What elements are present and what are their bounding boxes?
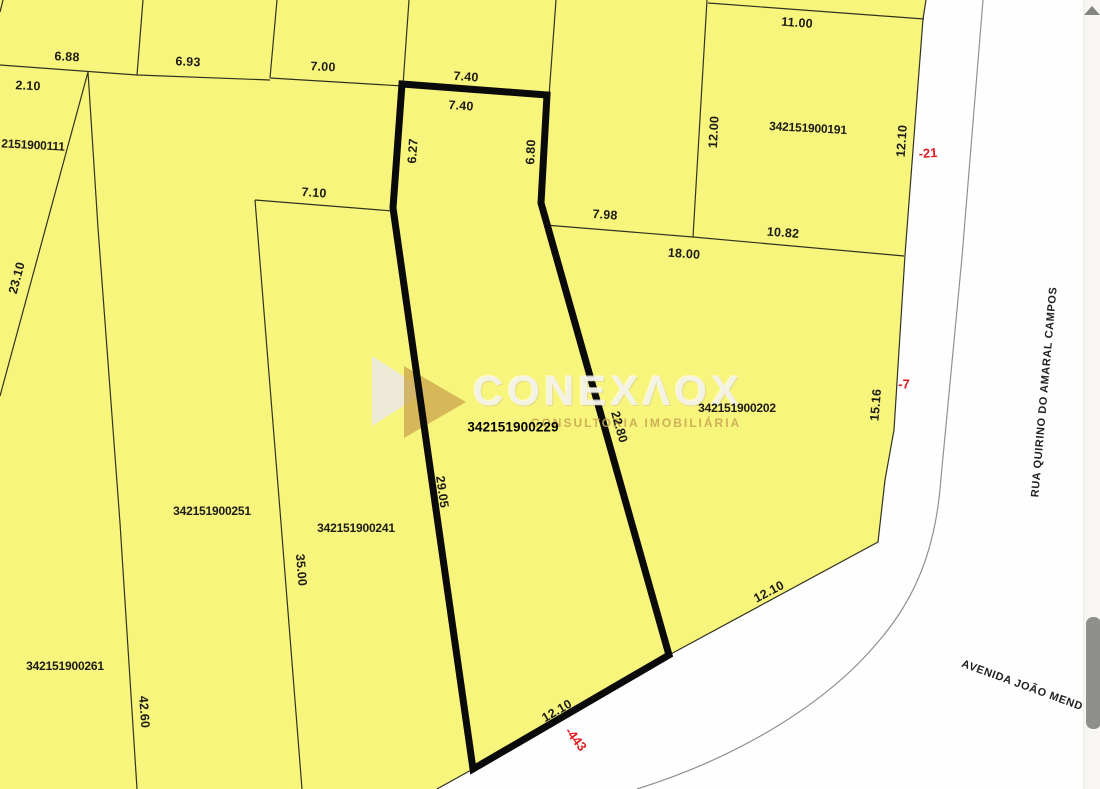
cadastral-map-viewport: CONEXΛOX CONSULTORIA IMOBILIÁRIA 6.886.9…	[0, 0, 1100, 789]
parcel-block	[0, 0, 926, 789]
cadastral-map-svg	[0, 0, 1100, 789]
vertical-scrollbar[interactable]	[1083, 0, 1100, 789]
scrollbar-thumb[interactable]	[1086, 617, 1100, 729]
scrollbar-up-arrow-icon[interactable]	[1084, 6, 1100, 15]
